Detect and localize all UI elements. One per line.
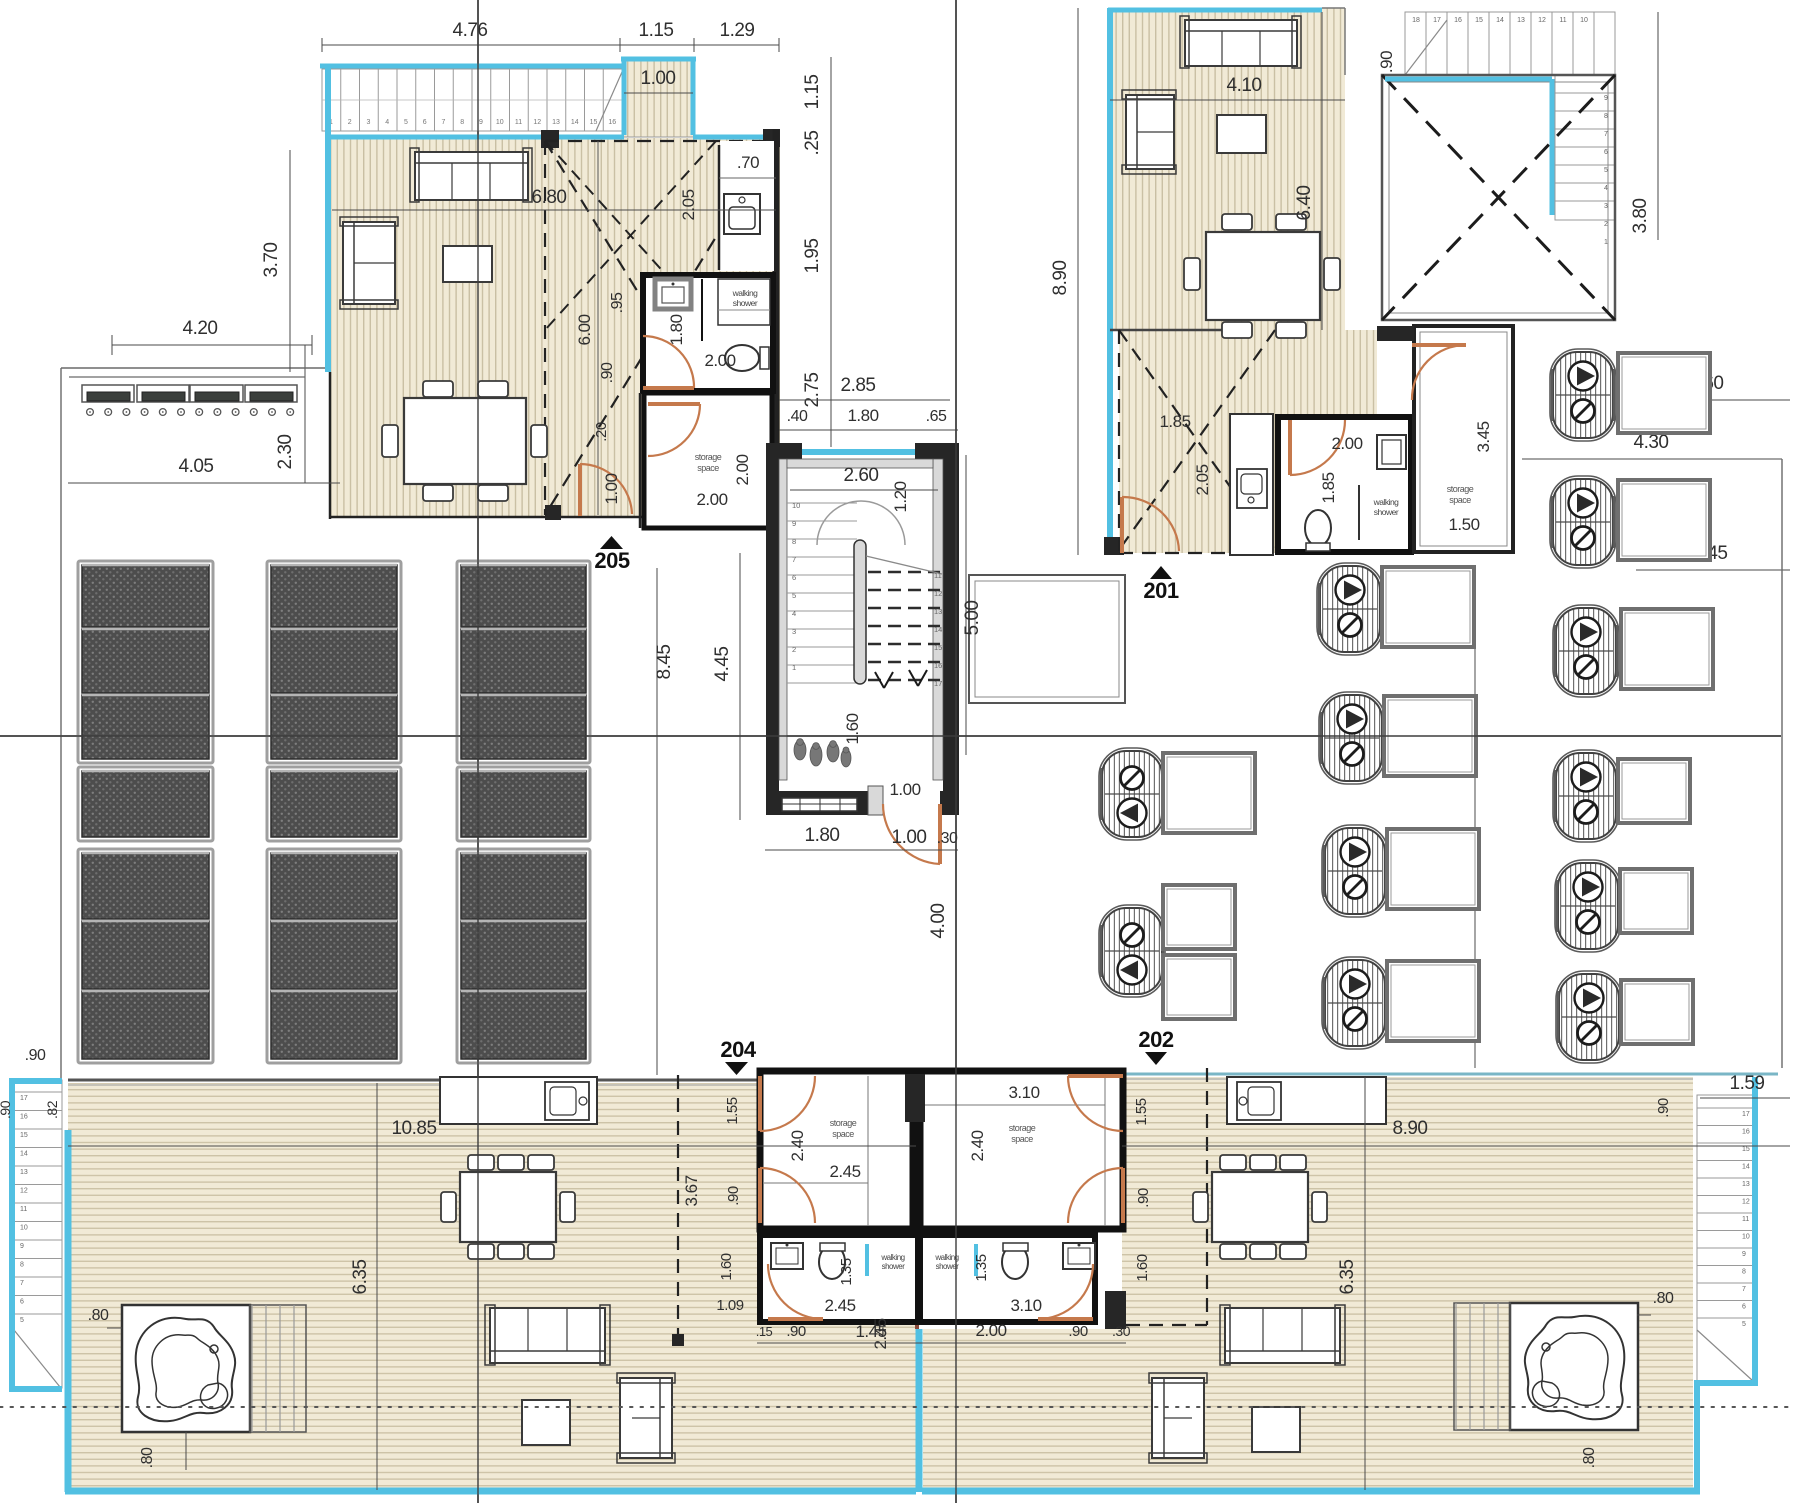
svg-text:6: 6 xyxy=(1742,1304,1746,1311)
svg-text:14: 14 xyxy=(1496,17,1504,24)
svg-text:1.55: 1.55 xyxy=(724,1097,741,1124)
svg-text:15: 15 xyxy=(1742,1146,1750,1153)
svg-text:2.30: 2.30 xyxy=(275,435,296,470)
svg-text:18: 18 xyxy=(1412,17,1420,24)
svg-text:9: 9 xyxy=(792,519,796,528)
svg-text:1.00: 1.00 xyxy=(641,68,676,89)
svg-text:2.00: 2.00 xyxy=(975,1321,1006,1340)
svg-text:.82: .82 xyxy=(44,1100,60,1119)
svg-text:7: 7 xyxy=(1604,131,1608,138)
svg-text:.90: .90 xyxy=(1068,1323,1088,1340)
svg-text:1.80: 1.80 xyxy=(667,314,686,345)
svg-text:14: 14 xyxy=(20,1151,28,1158)
svg-text:5: 5 xyxy=(1742,1321,1746,1328)
svg-text:.65: .65 xyxy=(926,408,947,425)
svg-text:3: 3 xyxy=(1604,203,1608,210)
svg-text:3: 3 xyxy=(367,119,371,126)
svg-text:204: 204 xyxy=(720,1037,756,1062)
svg-text:16: 16 xyxy=(20,1114,28,1121)
svg-text:7: 7 xyxy=(1742,1286,1746,1293)
svg-text:17: 17 xyxy=(20,1095,28,1102)
svg-text:5: 5 xyxy=(404,119,408,126)
svg-text:12: 12 xyxy=(1742,1199,1750,1206)
svg-text:11: 11 xyxy=(515,119,522,126)
svg-text:5: 5 xyxy=(20,1317,24,1324)
svg-text:12: 12 xyxy=(533,119,541,126)
svg-text:3.10: 3.10 xyxy=(1010,1296,1041,1315)
svg-text:6: 6 xyxy=(792,573,796,582)
svg-text:walking: walking xyxy=(1373,497,1400,507)
svg-text:2.05: 2.05 xyxy=(679,189,698,220)
svg-text:6.00: 6.00 xyxy=(575,314,594,345)
svg-text:1.85: 1.85 xyxy=(1159,412,1190,431)
svg-text:13: 13 xyxy=(934,607,942,616)
svg-text:4.10: 4.10 xyxy=(1227,75,1262,96)
svg-text:5: 5 xyxy=(792,591,796,600)
svg-text:2: 2 xyxy=(348,119,352,126)
svg-text:.90: .90 xyxy=(1377,51,1396,73)
svg-text:8.90: 8.90 xyxy=(1050,261,1071,296)
svg-text:1.60: 1.60 xyxy=(1134,1254,1151,1281)
svg-text:4: 4 xyxy=(1604,185,1608,192)
svg-text:space: space xyxy=(1011,1134,1033,1144)
svg-text:1.20: 1.20 xyxy=(891,481,910,512)
svg-text:5.00: 5.00 xyxy=(962,601,983,636)
svg-text:4.20: 4.20 xyxy=(183,318,218,339)
svg-text:205: 205 xyxy=(594,548,629,573)
svg-text:1.80: 1.80 xyxy=(847,406,878,425)
svg-text:1.55: 1.55 xyxy=(1133,1098,1150,1125)
svg-text:6: 6 xyxy=(1604,149,1608,156)
svg-text:3.10: 3.10 xyxy=(1008,1083,1039,1102)
svg-text:2.45: 2.45 xyxy=(824,1296,855,1315)
svg-text:.80: .80 xyxy=(1581,1447,1598,1468)
svg-text:7: 7 xyxy=(20,1280,24,1287)
svg-text:storage: storage xyxy=(830,1118,857,1128)
svg-text:.15: .15 xyxy=(756,1324,773,1339)
svg-text:6: 6 xyxy=(423,119,427,126)
svg-text:9: 9 xyxy=(479,119,483,126)
svg-text:walking: walking xyxy=(732,288,759,298)
svg-text:3.67: 3.67 xyxy=(682,1175,701,1206)
svg-text:shower: shower xyxy=(1374,507,1399,517)
svg-text:.80: .80 xyxy=(88,1307,109,1324)
svg-text:10.85: 10.85 xyxy=(391,1118,436,1139)
svg-text:15: 15 xyxy=(20,1132,28,1139)
svg-text:walking: walking xyxy=(934,1253,958,1262)
svg-text:3.70: 3.70 xyxy=(261,243,282,278)
svg-text:1.15: 1.15 xyxy=(802,75,823,110)
svg-text:12: 12 xyxy=(20,1188,28,1195)
svg-text:9: 9 xyxy=(1604,95,1608,102)
svg-text:.40: .40 xyxy=(787,408,808,425)
svg-text:.90: .90 xyxy=(1135,1188,1152,1208)
svg-text:2.75: 2.75 xyxy=(802,373,823,408)
svg-text:storage: storage xyxy=(1009,1123,1036,1133)
svg-text:1.60: 1.60 xyxy=(718,1253,735,1280)
svg-text:202: 202 xyxy=(1138,1027,1173,1052)
svg-text:3: 3 xyxy=(792,627,796,636)
svg-text:10: 10 xyxy=(496,119,504,126)
svg-text:1.00: 1.00 xyxy=(602,473,621,504)
svg-text:shower: shower xyxy=(882,1262,906,1271)
svg-text:2.40: 2.40 xyxy=(788,1130,807,1161)
svg-text:17: 17 xyxy=(934,679,942,688)
svg-text:2.40: 2.40 xyxy=(968,1130,987,1161)
svg-text:17: 17 xyxy=(1742,1111,1750,1118)
svg-text:5: 5 xyxy=(1604,167,1608,174)
svg-text:1.59: 1.59 xyxy=(1730,1073,1765,1094)
svg-text:16: 16 xyxy=(1742,1129,1750,1136)
svg-text:.90: .90 xyxy=(725,1186,742,1206)
svg-text:8: 8 xyxy=(1742,1269,1746,1276)
svg-text:2.00: 2.00 xyxy=(704,351,735,370)
svg-text:walking: walking xyxy=(880,1253,904,1262)
svg-text:storage: storage xyxy=(1447,484,1474,494)
svg-text:1.15: 1.15 xyxy=(639,20,674,41)
svg-text:11: 11 xyxy=(934,571,942,580)
svg-text:3.45: 3.45 xyxy=(1474,421,1493,452)
svg-text:.95: .95 xyxy=(609,292,626,313)
svg-text:2.05: 2.05 xyxy=(1193,464,1212,495)
svg-text:.90: .90 xyxy=(0,1100,13,1119)
svg-text:15: 15 xyxy=(1475,17,1483,24)
svg-text:8: 8 xyxy=(460,119,464,126)
svg-text:14: 14 xyxy=(934,625,942,634)
svg-text:4.00: 4.00 xyxy=(928,904,949,939)
svg-text:6.40: 6.40 xyxy=(1294,186,1315,221)
svg-text:8: 8 xyxy=(1604,113,1608,120)
svg-text:12: 12 xyxy=(934,589,942,598)
svg-text:7: 7 xyxy=(442,119,446,126)
svg-text:.30: .30 xyxy=(937,830,958,847)
svg-text:4: 4 xyxy=(385,119,389,126)
svg-text:.20: .20 xyxy=(593,422,610,442)
svg-text:8: 8 xyxy=(20,1262,24,1269)
svg-text:2: 2 xyxy=(1604,221,1608,228)
svg-text:1.60: 1.60 xyxy=(843,713,862,744)
svg-text:15: 15 xyxy=(934,643,942,652)
svg-text:1.35: 1.35 xyxy=(973,1254,990,1281)
svg-text:.25: .25 xyxy=(802,131,823,156)
svg-text:6.80: 6.80 xyxy=(532,187,567,208)
svg-text:10: 10 xyxy=(20,1225,28,1232)
svg-text:.80: .80 xyxy=(1653,1290,1674,1307)
svg-text:15: 15 xyxy=(590,119,598,126)
svg-text:1: 1 xyxy=(792,663,796,672)
svg-text:16: 16 xyxy=(1454,17,1462,24)
svg-text:1.29: 1.29 xyxy=(720,20,755,41)
svg-text:6.35: 6.35 xyxy=(1337,1260,1358,1295)
svg-text:10: 10 xyxy=(1742,1234,1750,1241)
svg-text:11: 11 xyxy=(1742,1216,1749,1223)
svg-text:14: 14 xyxy=(571,119,579,126)
svg-text:2.45: 2.45 xyxy=(829,1162,860,1181)
svg-text:shower: shower xyxy=(733,298,758,308)
svg-text:11: 11 xyxy=(1559,17,1566,24)
svg-text:4.76: 4.76 xyxy=(453,20,488,41)
svg-text:13: 13 xyxy=(1742,1181,1750,1188)
svg-text:17: 17 xyxy=(1433,17,1441,24)
svg-text:.70: .70 xyxy=(737,153,759,172)
svg-text:1.35: 1.35 xyxy=(838,1258,855,1285)
svg-text:1.45: 1.45 xyxy=(855,1322,886,1341)
svg-text:2.00: 2.00 xyxy=(696,490,727,509)
svg-text:.90: .90 xyxy=(1655,1098,1672,1118)
svg-text:1.95: 1.95 xyxy=(802,239,823,274)
svg-text:12: 12 xyxy=(1538,17,1546,24)
svg-text:.30: .30 xyxy=(1112,1323,1131,1339)
svg-text:2.00: 2.00 xyxy=(733,454,752,485)
svg-text:2: 2 xyxy=(792,645,796,654)
svg-text:13: 13 xyxy=(20,1169,28,1176)
svg-text:1.00: 1.00 xyxy=(892,827,927,848)
svg-text:.90: .90 xyxy=(786,1323,806,1340)
svg-text:3.80: 3.80 xyxy=(1630,199,1651,234)
svg-text:10: 10 xyxy=(792,501,800,510)
svg-text:7: 7 xyxy=(792,555,796,564)
svg-text:9: 9 xyxy=(1742,1251,1746,1258)
svg-text:201: 201 xyxy=(1143,578,1178,603)
svg-text:8.90: 8.90 xyxy=(1393,1118,1428,1139)
svg-text:.90: .90 xyxy=(25,1047,46,1064)
svg-text:1.50: 1.50 xyxy=(1448,515,1479,534)
svg-text:16: 16 xyxy=(934,661,942,670)
svg-text:1.09: 1.09 xyxy=(716,1297,743,1314)
svg-text:space: space xyxy=(1449,495,1471,505)
svg-text:11: 11 xyxy=(20,1206,27,1213)
svg-text:.80: .80 xyxy=(139,1447,156,1468)
svg-text:16: 16 xyxy=(608,119,616,126)
svg-text:space: space xyxy=(832,1129,854,1139)
svg-text:6: 6 xyxy=(20,1299,24,1306)
svg-text:2.00: 2.00 xyxy=(1331,434,1362,453)
svg-text:1.00: 1.00 xyxy=(889,780,920,799)
svg-text:8.45: 8.45 xyxy=(654,645,675,680)
svg-text:1.85: 1.85 xyxy=(1319,472,1338,503)
svg-text:4.05: 4.05 xyxy=(179,456,214,477)
svg-text:13: 13 xyxy=(1517,17,1525,24)
svg-text:4.30: 4.30 xyxy=(1634,432,1669,453)
svg-text:2.85: 2.85 xyxy=(841,375,876,396)
svg-text:4: 4 xyxy=(792,609,796,618)
svg-text:9: 9 xyxy=(20,1243,24,1250)
svg-text:14: 14 xyxy=(1742,1164,1750,1171)
svg-text:storage: storage xyxy=(695,452,722,462)
svg-text:10: 10 xyxy=(1580,17,1588,24)
svg-text:6.35: 6.35 xyxy=(350,1260,371,1295)
svg-text:2.60: 2.60 xyxy=(844,465,879,486)
svg-text:4.45: 4.45 xyxy=(712,647,733,682)
svg-text:1: 1 xyxy=(1604,239,1608,246)
svg-text:8: 8 xyxy=(792,537,796,546)
svg-text:1.80: 1.80 xyxy=(805,825,840,846)
svg-text:space: space xyxy=(697,463,719,473)
svg-text:13: 13 xyxy=(552,119,560,126)
svg-text:.90: .90 xyxy=(599,362,616,383)
